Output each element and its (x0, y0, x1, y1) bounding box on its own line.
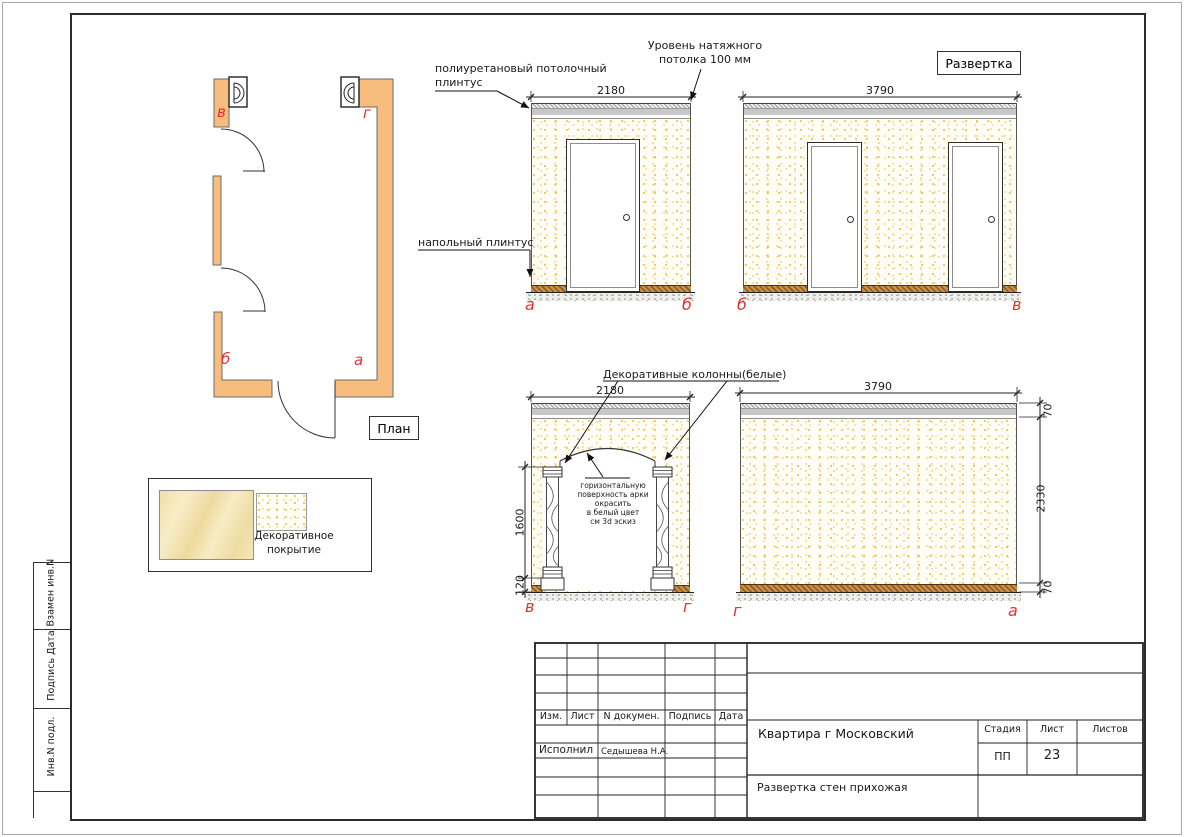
dim-e3-width: 2180 (590, 384, 630, 397)
legend-caption-line1: Декоративное (244, 530, 344, 542)
tb-sheet-name: Развертка стен прихожая (757, 781, 908, 794)
plan-corner-label-g: г (363, 104, 371, 122)
ceiling-plinth-note-line1: полиуретановый потолочный (435, 62, 607, 75)
e4-right-label: а (1008, 601, 1018, 620)
tb-col-ndoc: N докумен. (598, 711, 665, 722)
view-title: Развертка (945, 56, 1012, 71)
tb-sheet-number: 23 (1027, 748, 1077, 763)
tb-col-data: Дата (715, 711, 747, 722)
side-stamp-inv: Инв.N подл. (46, 705, 57, 788)
tb-stage-label: Стадия (978, 724, 1027, 735)
tb-col-izm: Изм. (535, 711, 567, 722)
tb-executor-label: Исполнил (539, 744, 593, 756)
dim-e2-width: 3790 (860, 84, 900, 97)
columns-note: Декоративные колонны(белые) (603, 368, 786, 381)
legend-caption-line2: покрытие (244, 544, 344, 556)
e4-left-label: г (733, 601, 741, 620)
dim-e1-width: 2180 (591, 84, 631, 97)
side-stamp-podpis-data: Подпись Дата (46, 626, 57, 705)
ceiling-plinth-note-line2: плинтус (435, 76, 483, 89)
drawing-sheet: в г б а План полиуретановый потолочный п… (0, 0, 1184, 837)
e2-left-label: б (737, 295, 747, 314)
ceiling-level-note-line1: Уровень натяжного (641, 39, 769, 52)
view-title-box: Развертка (937, 51, 1021, 75)
dim-e4-width: 3790 (858, 380, 898, 393)
plan-corner-label-b: б (221, 350, 230, 368)
plan-corner-label-a: а (354, 351, 363, 369)
tb-col-podpis: Подпись (665, 711, 715, 722)
plan-column-symbols (229, 77, 359, 107)
side-stamp-vzamen: Взамен инв.N (46, 561, 57, 627)
tb-sheet-label: Лист (1027, 724, 1077, 735)
dim-e3-height: 1600 (514, 503, 527, 543)
tb-sheets-label: Листов (1077, 724, 1143, 735)
plan-title: План (377, 421, 410, 436)
leader-lines (418, 69, 779, 478)
e1-left-label: а (525, 295, 535, 314)
dim-e4-mid: 2330 (1035, 479, 1048, 519)
plan-title-box: План (369, 416, 419, 440)
plan-column-arcs (234, 83, 354, 103)
tb-project-name: Квартира г Московский (758, 726, 914, 741)
floor-plan-walls (213, 79, 393, 397)
dim-e4-top: 70 (1042, 391, 1055, 431)
tb-stage-value: ПП (978, 750, 1027, 763)
e1-right-label: б (682, 295, 692, 314)
dim-e4-bottom: 70 (1042, 568, 1055, 608)
e2-right-label: в (1012, 295, 1021, 314)
tb-executor-name: Седышева Н.А. (601, 747, 668, 757)
floor-plinth-note: напольный плинтус (418, 236, 533, 249)
ceiling-level-note-line2: потолка 100 мм (641, 53, 769, 66)
tb-col-list: Лист (567, 711, 598, 722)
arch-paint-note: горизонтальную поверхность арки окрасить… (573, 481, 653, 526)
plan-corner-label-v: в (217, 103, 226, 121)
side-stamp-divider (34, 791, 71, 792)
e3-left-label: в (525, 597, 534, 616)
e3-right-label: г (683, 597, 691, 616)
